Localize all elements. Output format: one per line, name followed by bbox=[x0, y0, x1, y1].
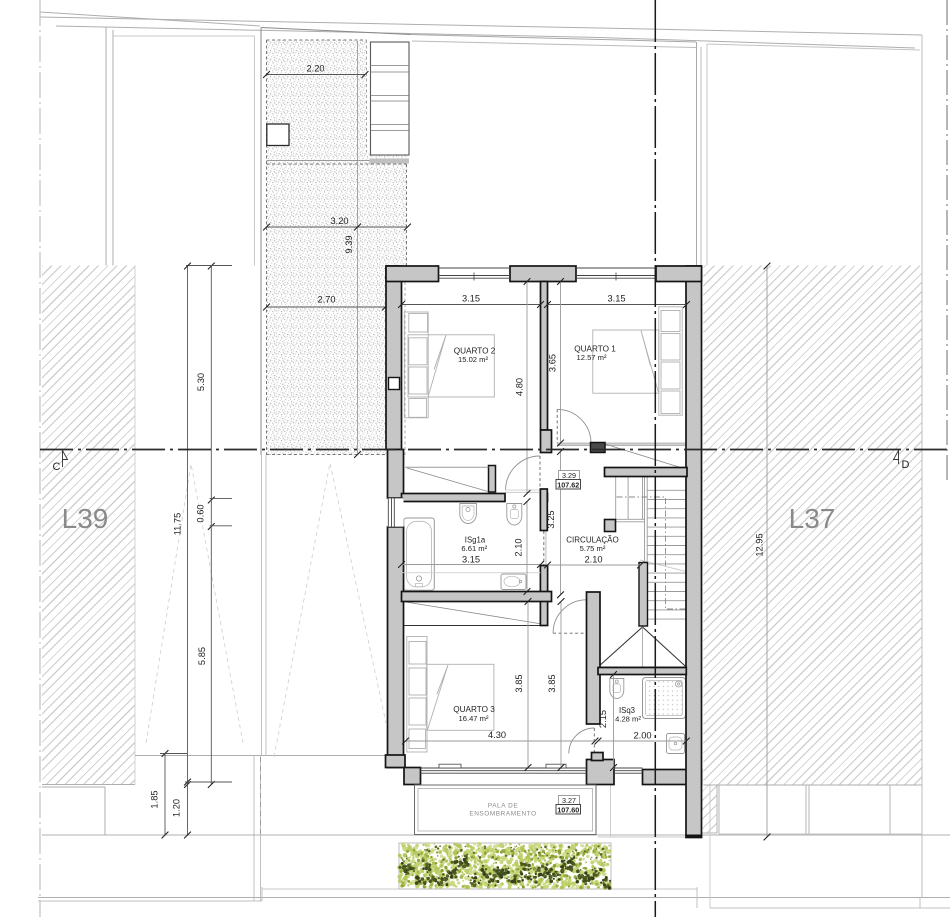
svg-text:3.15: 3.15 bbox=[462, 294, 480, 304]
svg-text:3.27: 3.27 bbox=[562, 796, 576, 805]
svg-text:ENSOMBRAMENTO: ENSOMBRAMENTO bbox=[469, 811, 536, 818]
svg-text:5.30: 5.30 bbox=[196, 373, 206, 391]
svg-text:3.29: 3.29 bbox=[562, 471, 576, 480]
svg-text:3.85: 3.85 bbox=[514, 674, 524, 692]
svg-text:3.15: 3.15 bbox=[607, 294, 625, 304]
svg-text:4.80: 4.80 bbox=[515, 378, 525, 396]
svg-text:D: D bbox=[902, 459, 910, 471]
svg-text:1.20: 1.20 bbox=[172, 799, 182, 817]
svg-text:15.02 m²: 15.02 m² bbox=[458, 355, 488, 364]
svg-text:2.10: 2.10 bbox=[584, 555, 602, 565]
svg-text:PALA DE: PALA DE bbox=[488, 803, 518, 810]
svg-text:4.30: 4.30 bbox=[488, 730, 506, 740]
svg-text:2.20: 2.20 bbox=[306, 64, 324, 74]
svg-text:3.85: 3.85 bbox=[547, 674, 557, 692]
svg-text:3.20: 3.20 bbox=[330, 216, 348, 226]
svg-text:3.65: 3.65 bbox=[548, 354, 558, 372]
svg-text:3.25: 3.25 bbox=[546, 510, 556, 528]
svg-text:11.75: 11.75 bbox=[173, 513, 183, 536]
svg-text:3.15: 3.15 bbox=[462, 555, 480, 565]
svg-text:L37: L37 bbox=[789, 503, 836, 534]
svg-text:16.47 m²: 16.47 m² bbox=[459, 714, 489, 723]
svg-text:2.70: 2.70 bbox=[317, 295, 335, 305]
svg-text:2.10: 2.10 bbox=[514, 538, 524, 556]
svg-text:2.15: 2.15 bbox=[598, 710, 608, 728]
svg-text:L39: L39 bbox=[62, 503, 109, 534]
svg-text:107.60: 107.60 bbox=[557, 805, 579, 814]
svg-text:1.85: 1.85 bbox=[150, 790, 160, 808]
svg-text:5.85: 5.85 bbox=[197, 647, 207, 665]
svg-text:6.61 m²: 6.61 m² bbox=[461, 544, 487, 553]
svg-text:107.62: 107.62 bbox=[557, 480, 579, 489]
svg-text:4.28 m²: 4.28 m² bbox=[615, 715, 641, 724]
svg-text:12.57 m²: 12.57 m² bbox=[577, 353, 607, 362]
svg-text:0.60: 0.60 bbox=[196, 504, 206, 522]
svg-text:12.95: 12.95 bbox=[755, 533, 765, 556]
svg-text:C: C bbox=[53, 461, 61, 473]
svg-text:5.75 m²: 5.75 m² bbox=[580, 544, 606, 553]
svg-text:9.39: 9.39 bbox=[344, 235, 354, 253]
svg-text:2.00: 2.00 bbox=[633, 731, 651, 741]
svg-text:QUARTO 3: QUARTO 3 bbox=[453, 705, 495, 714]
